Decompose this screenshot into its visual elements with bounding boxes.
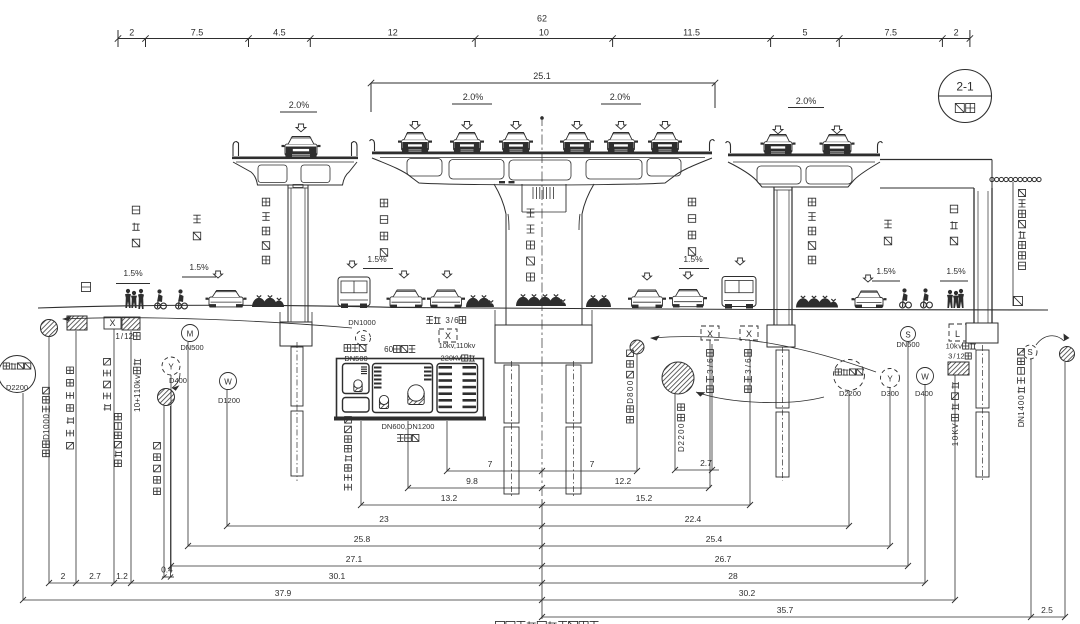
svg-text:D400: D400 <box>915 389 933 398</box>
svg-text:2: 2 <box>677 441 686 446</box>
svg-text:D1200: D1200 <box>218 396 240 405</box>
svg-text:X: X <box>109 318 115 328</box>
svg-text:35.7: 35.7 <box>777 605 794 615</box>
svg-text:X: X <box>746 329 752 339</box>
svg-text:1: 1 <box>951 441 960 446</box>
svg-text:S: S <box>1027 348 1032 357</box>
svg-text:7: 7 <box>590 459 595 469</box>
svg-text:0: 0 <box>389 345 394 354</box>
svg-text:3: 3 <box>744 369 753 374</box>
svg-text:12.2: 12.2 <box>615 476 632 486</box>
svg-text:2.7: 2.7 <box>700 458 712 468</box>
svg-text:62: 62 <box>537 14 547 24</box>
svg-text:37.9: 37.9 <box>275 588 292 598</box>
svg-text:15.2: 15.2 <box>636 493 653 503</box>
svg-text:2: 2 <box>961 352 965 361</box>
svg-text:2-1: 2-1 <box>956 80 974 94</box>
svg-text:V: V <box>951 423 960 429</box>
svg-text:DN500: DN500 <box>344 354 367 363</box>
svg-text:7.5: 7.5 <box>885 28 898 38</box>
svg-text:12: 12 <box>388 28 398 38</box>
svg-text:2.0%: 2.0% <box>610 92 631 102</box>
svg-text:M: M <box>187 330 194 339</box>
svg-text:1.5%: 1.5% <box>946 266 966 276</box>
svg-text:0: 0 <box>677 429 686 434</box>
svg-text:D: D <box>626 398 635 404</box>
svg-text:25.1: 25.1 <box>533 71 551 81</box>
svg-text:0: 0 <box>626 380 635 385</box>
svg-text:26.7: 26.7 <box>715 554 732 564</box>
svg-text:2.0%: 2.0% <box>289 100 310 110</box>
svg-text:1.5%: 1.5% <box>189 262 209 272</box>
svg-text:V: V <box>457 354 462 363</box>
svg-text:1.5%: 1.5% <box>123 268 143 278</box>
svg-text:23: 23 <box>379 514 389 524</box>
svg-text:2.0%: 2.0% <box>796 96 817 106</box>
svg-text:0: 0 <box>1017 400 1026 405</box>
svg-text:1: 1 <box>1017 411 1026 416</box>
svg-text:10: 10 <box>539 28 549 38</box>
svg-text:28: 28 <box>728 571 738 581</box>
svg-text:X: X <box>707 329 713 339</box>
svg-text:S: S <box>905 331 910 340</box>
svg-text:3: 3 <box>948 352 952 361</box>
svg-text:22.4: 22.4 <box>685 514 702 524</box>
svg-text:0.4: 0.4 <box>161 565 173 575</box>
svg-text:1.5%: 1.5% <box>683 254 703 264</box>
svg-text:D2200: D2200 <box>6 383 28 392</box>
svg-text:DN1000: DN1000 <box>348 318 376 327</box>
svg-text:Y: Y <box>887 375 893 384</box>
svg-text:11.5: 11.5 <box>683 28 700 38</box>
svg-text:D: D <box>677 446 686 452</box>
svg-text:5: 5 <box>802 28 807 38</box>
svg-text:W: W <box>224 378 232 387</box>
svg-text:25.8: 25.8 <box>354 534 371 544</box>
svg-text:1.2: 1.2 <box>116 571 128 581</box>
svg-text:2: 2 <box>677 435 686 440</box>
svg-text:30.1: 30.1 <box>329 571 346 581</box>
svg-text:27.1: 27.1 <box>346 554 363 564</box>
svg-text:Y: Y <box>168 363 174 372</box>
svg-text:4.5: 4.5 <box>273 28 286 38</box>
svg-text:DN500: DN500 <box>180 343 203 352</box>
svg-text:1: 1 <box>115 332 120 341</box>
svg-text:13.2: 13.2 <box>441 493 458 503</box>
svg-text:v: v <box>133 375 142 379</box>
svg-text:2: 2 <box>129 28 134 38</box>
svg-text:D2200: D2200 <box>839 389 861 398</box>
svg-text:2.0%: 2.0% <box>463 92 484 102</box>
svg-text:2.7: 2.7 <box>89 571 101 581</box>
svg-text:2: 2 <box>61 571 66 581</box>
svg-text:0: 0 <box>951 435 960 440</box>
svg-text:W: W <box>921 373 929 382</box>
svg-text:3: 3 <box>706 369 715 374</box>
svg-text:6: 6 <box>454 316 459 325</box>
svg-text:v: v <box>958 342 962 351</box>
svg-text:L: L <box>955 329 960 339</box>
svg-text:0: 0 <box>626 386 635 391</box>
svg-text:6: 6 <box>706 358 715 363</box>
svg-text:2.5: 2.5 <box>1041 605 1053 615</box>
svg-text:S: S <box>360 334 365 343</box>
svg-text:1.5%: 1.5% <box>367 254 387 264</box>
svg-text:6: 6 <box>744 358 753 363</box>
svg-text:3: 3 <box>445 316 450 325</box>
svg-text:7.5: 7.5 <box>191 28 204 38</box>
svg-text:30.2: 30.2 <box>739 588 756 598</box>
svg-text:X: X <box>445 331 451 341</box>
svg-text:4: 4 <box>1017 405 1026 410</box>
svg-text:1.5%: 1.5% <box>876 266 896 276</box>
svg-text:7: 7 <box>488 459 493 469</box>
svg-text:0: 0 <box>42 414 51 419</box>
svg-text:0: 0 <box>677 423 686 428</box>
svg-text:10kv,110kv: 10kv,110kv <box>439 341 476 350</box>
svg-text:8: 8 <box>626 392 635 397</box>
svg-text:2: 2 <box>954 28 959 38</box>
svg-text:0: 0 <box>1017 395 1026 400</box>
svg-text:25.4: 25.4 <box>706 534 723 544</box>
svg-text:9.8: 9.8 <box>466 476 478 486</box>
